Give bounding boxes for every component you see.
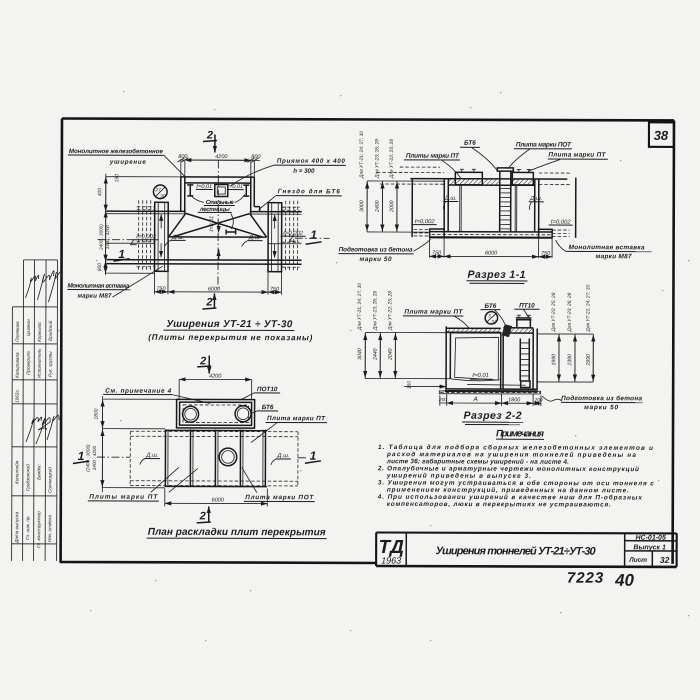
svg-text:Лист: Лист (628, 557, 647, 564)
svg-text:ℓ=0,01: ℓ=0,01 (209, 216, 215, 233)
svg-text:Гнездо для БТ6: Гнездо для БТ6 (278, 188, 341, 195)
svg-text:750: 750 (156, 286, 166, 292)
svg-text:БТ6: БТ6 (485, 303, 497, 310)
svg-text:3040: 3040 (357, 348, 363, 360)
svg-text:32: 32 (660, 555, 670, 565)
svg-text:Плита марки ПОТ: Плита марки ПОТ (516, 141, 572, 148)
svg-text:Подготовка из бетона: Подготовка из бетона (339, 245, 413, 253)
svg-text:1: 1 (310, 228, 317, 242)
svg-text:3: 3 (488, 313, 491, 318)
svg-text:Монолитная вставка: Монолитная вставка (569, 244, 645, 251)
svg-text:3400 ; 4200: 3400 ; 4200 (105, 225, 110, 250)
svg-text:Для УТ-22; 25; 28: Для УТ-22; 25; 28 (387, 291, 393, 331)
svg-text:Цыпкин: Цыпкин (26, 319, 31, 336)
svg-text:БТ6: БТ6 (464, 140, 476, 147)
svg-text:2390: 2390 (567, 354, 573, 367)
svg-text:Гродзенский: Гродзенский (24, 464, 30, 491)
svg-text:Для УТ-23; 26; 29: Для УТ-23; 26; 29 (372, 291, 378, 331)
svg-text:2: 2 (206, 129, 213, 141)
svg-text:Плита марки ПОТ: Плита марки ПОТ (245, 494, 314, 501)
svg-text:Для УТ-21; 24; 27; 30: Для УТ-21; 24; 27; 30 (357, 283, 363, 331)
svg-text:Для УТ-22; 25; 28: Для УТ-22; 25; 28 (551, 292, 557, 332)
svg-text:Примечания: Примечания (496, 428, 544, 439)
svg-text:2400 ; 3000): 2400 ; 3000) (99, 224, 104, 251)
svg-text:1963г.: 1963г. (15, 389, 20, 403)
svg-text:Приямок 400 х 400: Приямок 400 х 400 (277, 158, 346, 165)
svg-text:200: 200 (534, 397, 543, 403)
svg-text:4200: 4200 (215, 154, 228, 160)
svg-text:ПТ10: ПТ10 (519, 302, 535, 309)
svg-text:Плита марки ПТ: Плита марки ПТ (548, 152, 606, 159)
svg-text:Подготовка из бетона: Подготовка из бетона (561, 394, 642, 402)
svg-text:750: 750 (432, 250, 442, 256)
svg-text:750: 750 (541, 251, 551, 257)
svg-text:h = 300: h = 300 (293, 168, 315, 175)
svg-text:Гл. конструктор: Гл. конструктор (36, 511, 41, 548)
svg-text:Копштейн: Копштейн (13, 460, 19, 484)
svg-text:6000: 6000 (485, 251, 498, 257)
svg-text:1: 1 (310, 449, 317, 463)
svg-text:Д.ш.: Д.ш. (529, 196, 542, 202)
svg-text:марки 50: марки 50 (584, 404, 618, 411)
svg-text:НС-01-05: НС-01-05 (635, 535, 665, 542)
svg-text:2400: 2400 (375, 200, 381, 213)
svg-text:Для УТ-23; 26; 29: Для УТ-23; 26; 29 (374, 139, 380, 179)
svg-text:1990: 1990 (551, 354, 557, 366)
svg-text:6000: 6000 (208, 286, 221, 292)
svg-text:400: 400 (97, 188, 103, 197)
svg-text:марки М87: марки М87 (596, 253, 632, 260)
svg-text:Гл. инж. пр.: Гл. инж. пр. (25, 515, 30, 540)
svg-text:А: А (472, 396, 477, 403)
svg-text:Для УТ-21; 24; 27; 30: Для УТ-21; 24; 27; 30 (585, 284, 591, 332)
svg-text:Бандос: Бандос (36, 464, 41, 480)
svg-text:2040: 2040 (388, 348, 394, 361)
svg-text:800: 800 (178, 154, 188, 160)
svg-text:Разрез 1-1: Разрез 1-1 (467, 269, 525, 281)
svg-text:Исполнитель: Исполнитель (37, 348, 42, 378)
svg-text:Для УТ-23; 26; 29: Для УТ-23; 26; 29 (567, 292, 573, 332)
svg-text:Плита марки ПТ: Плита марки ПТ (404, 309, 463, 316)
svg-text:БТ6: БТ6 (262, 404, 274, 411)
svg-text:Уширения УТ-21 ÷ УТ-30: Уширения УТ-21 ÷ УТ-30 (166, 319, 292, 330)
svg-text:Рук. группы: Рук. группы (48, 351, 53, 377)
svg-text:30: 30 (160, 194, 166, 200)
svg-text:марки М87: марки М87 (77, 293, 112, 300)
svg-text:150: 150 (114, 174, 120, 183)
svg-text:Разрез 2-2: Разрез 2-2 (464, 410, 522, 422)
svg-text:марки 50: марки 50 (360, 256, 392, 263)
svg-text:Плита марки ПТ: Плита марки ПТ (267, 415, 326, 422)
svg-text:1800: 1800 (94, 408, 100, 419)
svg-text:Вридский: Вридский (47, 320, 53, 341)
svg-text:Проверила: Проверила (26, 351, 31, 375)
svg-text:27: 27 (154, 187, 161, 193)
svg-text:уширение: уширение (109, 159, 147, 166)
svg-text:2000: 2000 (389, 200, 395, 213)
svg-text:2440: 2440 (373, 348, 379, 361)
svg-text:Монолитное железобетонное: Монолитное железобетонное (69, 148, 164, 155)
svg-text:Д.ш.: Д.ш. (145, 453, 158, 459)
svg-text:ℓ=0,01: ℓ=0,01 (471, 373, 489, 379)
svg-text:Плиты марки ПТ: Плиты марки ПТ (406, 153, 460, 160)
svg-text:Нач. отдела: Нач. отдела (47, 515, 52, 542)
svg-text:2: 2 (199, 510, 206, 522)
svg-text:800: 800 (97, 263, 103, 272)
svg-text:750: 750 (270, 287, 280, 293)
svg-text:См. примечание 4: См. примечание 4 (105, 388, 171, 395)
svg-text:3000: 3000 (359, 200, 365, 212)
svg-text:Для УТ-22; 25; 28: Для УТ-22; 25; 28 (389, 139, 395, 179)
svg-text:Копировала: Копировала (15, 352, 20, 378)
svg-text:(2400 ; 3000): (2400 ; 3000) (85, 444, 90, 472)
svg-text:Д.ш.: Д.ш. (276, 453, 289, 459)
svg-text:План раскладки плит перекры: План раскладки плит перекрытия (148, 527, 326, 539)
svg-text:1963: 1963 (381, 556, 401, 566)
svg-text:Выпуск 1: Выпуск 1 (633, 544, 666, 551)
svg-text:38: 38 (654, 128, 669, 143)
svg-text:800: 800 (251, 154, 261, 160)
svg-text:3400 ; 4200: 3400 ; 4200 (92, 446, 97, 471)
svg-text:Для УТ-21; 24; 27; 30: Для УТ-21; 24; 27; 30 (359, 131, 365, 179)
svg-text:1: 1 (78, 449, 85, 463)
svg-text:34: 34 (491, 319, 497, 324)
svg-text:ПОТ10: ПОТ10 (257, 386, 278, 393)
svg-text:(Плиты перекрытия не показа: (Плиты перекрытия не показаны) (148, 333, 312, 343)
svg-text:7223: 7223 (567, 570, 604, 587)
svg-text:2: 2 (205, 296, 212, 308)
svg-text:Д.ш.: Д.ш. (444, 196, 457, 202)
svg-text:40: 40 (614, 571, 635, 590)
svg-text:Корнилос: Корнилос (37, 321, 42, 342)
svg-text:1800: 1800 (508, 397, 521, 403)
svg-text:200: 200 (438, 397, 447, 403)
svg-text:Полякова: Полякова (15, 321, 20, 342)
svg-text:4200: 4200 (209, 373, 222, 379)
svg-text:6000: 6000 (212, 497, 225, 503)
svg-text:Дата выпуска: Дата выпуска (14, 511, 19, 543)
svg-text:Уширения тоннелей УТ-21÷УТ-30: Уширения тоннелей УТ-21÷УТ-30 (436, 545, 597, 558)
svg-text:Плиты марки ПТ: Плиты марки ПТ (89, 494, 158, 501)
svg-text:150: 150 (407, 381, 413, 389)
svg-text:Соляницкий: Соляницкий (46, 467, 52, 493)
svg-text:Монолитная вставка: Монолитная вставка (67, 283, 130, 290)
svg-text:2990: 2990 (586, 354, 592, 367)
svg-text:компенсаторов, люки в перек: компенсаторов, люки в перекрытиях не уст… (387, 501, 611, 509)
